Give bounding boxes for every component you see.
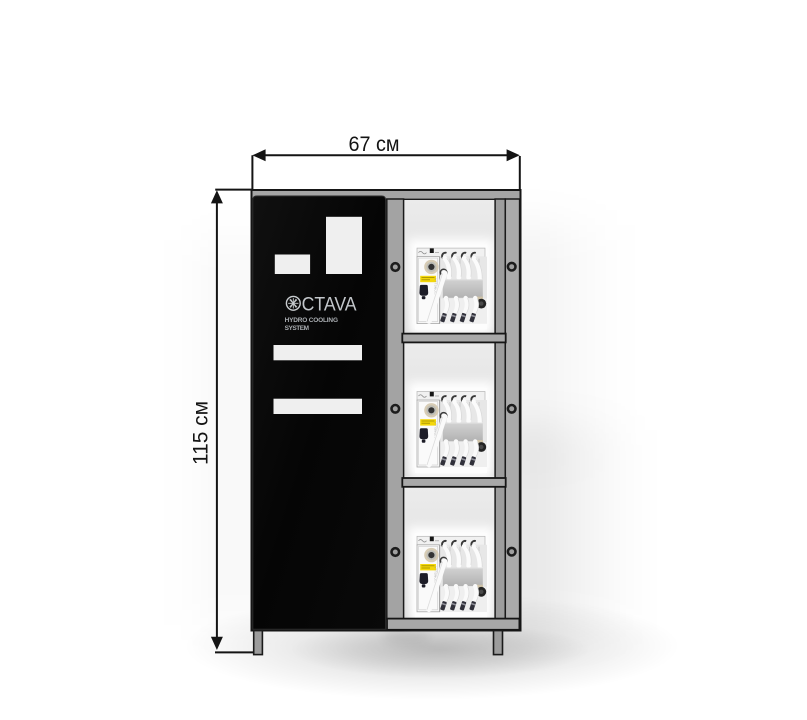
svg-text:CTAVA: CTAVA (302, 295, 357, 316)
svg-text:HYDRO COOLING: HYDRO COOLING (285, 317, 338, 324)
svg-text:115 см: 115 см (190, 401, 213, 465)
svg-text:67 см: 67 см (349, 133, 400, 156)
svg-text:SYSTEM: SYSTEM (285, 325, 309, 332)
